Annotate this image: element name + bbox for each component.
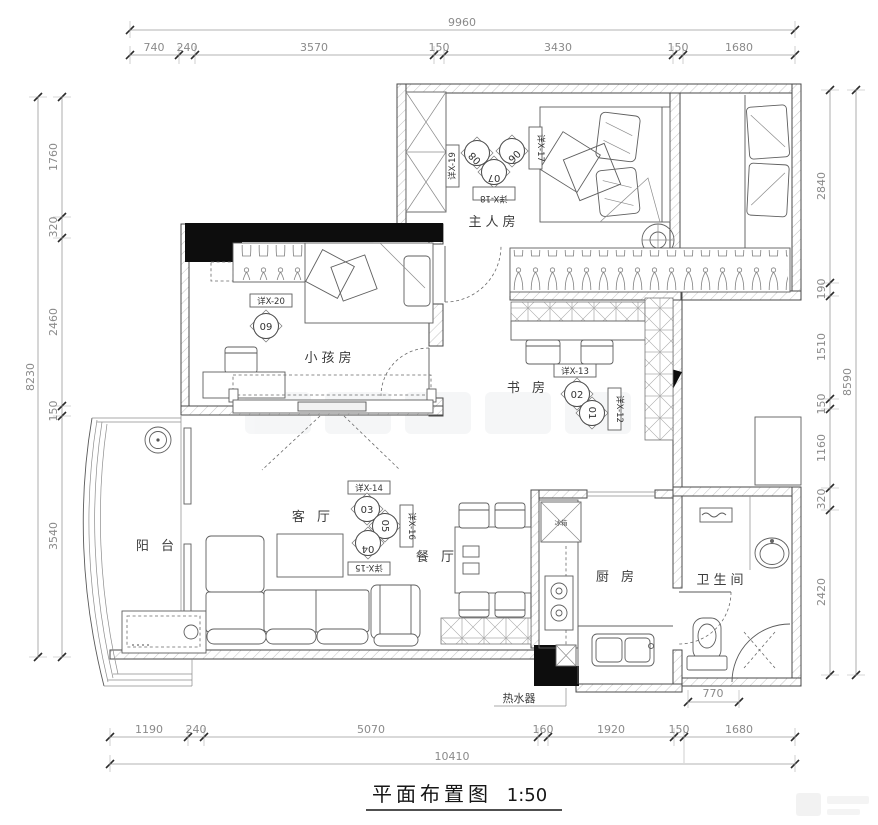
- svg-text:1760: 1760: [47, 143, 60, 171]
- room-label-dining: 餐 厅: [416, 549, 458, 565]
- svg-text:240: 240: [186, 723, 207, 736]
- floor-drain: [145, 427, 171, 453]
- dim-left-total: 8230: [24, 363, 37, 391]
- dining-chair: [459, 592, 489, 617]
- svg-text:320: 320: [47, 217, 60, 238]
- svg-text:1190: 1190: [135, 723, 163, 736]
- coffee-table: [277, 534, 343, 577]
- shower-area: [732, 624, 790, 682]
- svg-text:150: 150: [429, 41, 450, 54]
- callout-01: 01: [586, 407, 597, 420]
- study-chair: [581, 340, 613, 364]
- wash-basin: [755, 538, 789, 568]
- callout-ref-x20: 详X-20: [257, 296, 285, 307]
- sideboard-cabinet: [441, 618, 531, 644]
- callout-04: 04: [362, 543, 375, 554]
- kids-desk: [203, 347, 285, 398]
- svg-text:1680: 1680: [725, 723, 753, 736]
- svg-text:150: 150: [47, 401, 60, 422]
- svg-text:冰箱: 冰箱: [555, 518, 569, 527]
- room-label-bath: 卫生间: [696, 573, 747, 588]
- dim-bottom-total: 10410: [435, 750, 470, 763]
- svg-text:150: 150: [668, 41, 689, 54]
- svg-text:1510: 1510: [815, 333, 828, 361]
- callout-ref-x18: 详X-18: [480, 193, 508, 204]
- svg-text:1920: 1920: [597, 723, 625, 736]
- tall-cabinet: [645, 298, 673, 440]
- dining-chair: [459, 503, 489, 528]
- svg-text:320: 320: [815, 489, 828, 510]
- logo-watermark: [796, 793, 869, 816]
- callout-ref-x19: 详X-19: [447, 152, 458, 180]
- svg-text:1160: 1160: [815, 434, 828, 462]
- callout-ref-x16: 详X-16: [406, 512, 417, 540]
- svg-text:3570: 3570: [300, 41, 328, 54]
- stove: [545, 576, 573, 630]
- dimension-bath-width: 770: [684, 687, 743, 708]
- room-label-study: 书 房: [507, 380, 549, 396]
- bookshelf: [511, 302, 645, 321]
- towel-rack: [700, 508, 732, 522]
- callout-ref-x13: 详X-13: [561, 366, 589, 377]
- room-label-kids: 小孩房: [304, 350, 355, 366]
- balcony-door-mullion: [184, 428, 191, 504]
- callout-05: 05: [379, 520, 390, 533]
- kids-bed: [305, 243, 433, 323]
- room-label-kitchen: 厨 房: [596, 569, 638, 585]
- balcony: 阳 台: [83, 416, 206, 686]
- room-label-master: 主人房: [468, 214, 519, 230]
- svg-text:190: 190: [815, 279, 828, 300]
- svg-text:3540: 3540: [47, 522, 60, 550]
- drawing-scale: 1:50: [507, 785, 547, 806]
- room-label-living: 客 厅: [292, 509, 334, 525]
- svg-text:2460: 2460: [47, 308, 60, 336]
- bathroom: 卫生间: [679, 496, 790, 682]
- dimension-chain-left: 8230 1760 320 2460 150 3540: [24, 93, 71, 661]
- fridge: 冰箱: [541, 502, 581, 542]
- armchair: [371, 585, 420, 646]
- tv: [298, 402, 366, 411]
- dimension-chain-right: 2840 190 1510 150 1160 320 2420 8590: [815, 86, 865, 679]
- master-closet: [510, 248, 790, 292]
- room-label-balcony: 阳 台: [136, 539, 178, 554]
- dim-right-total: 8590: [841, 368, 854, 396]
- sink: [592, 634, 654, 666]
- callout-ref-x12: 详X-12: [614, 395, 625, 423]
- callout-02: 02: [571, 390, 584, 401]
- svg-text:150: 150: [815, 394, 828, 415]
- dining-room: 餐 厅: [416, 503, 531, 644]
- exterior-ledge: [755, 417, 801, 485]
- kitchen-door-track: [587, 492, 655, 496]
- dimension-chain-top: 9960 740 240 3570 150 3430 150 1680: [126, 16, 799, 64]
- floor-plan-canvas: 9960 740 240 3570 150 3430 150 1680 1190…: [0, 0, 878, 825]
- dim-top-total: 9960: [448, 16, 476, 29]
- svg-text:2420: 2420: [815, 578, 828, 606]
- balcony-door-mullion: [184, 544, 191, 620]
- dining-chair: [495, 592, 525, 617]
- master-bedroom: 08 06 07 详X-19 详X-17 详X-18 主人房: [406, 92, 790, 302]
- svg-text:3430: 3430: [544, 41, 572, 54]
- svg-text:150: 150: [669, 723, 690, 736]
- callout-07: 07: [488, 172, 501, 183]
- svg-text:740: 740: [144, 41, 165, 54]
- callout-09: 09: [260, 322, 273, 333]
- callout-ref-x15: 详X-15: [355, 562, 383, 573]
- svg-text:160: 160: [533, 723, 554, 736]
- dimension-chain-bottom: 1190 240 5070 160 1920 150 1680 10410: [106, 723, 799, 772]
- svg-text:240: 240: [177, 41, 198, 54]
- study-desk: [511, 321, 646, 340]
- svg-text:1680: 1680: [725, 41, 753, 54]
- svg-text:770: 770: [703, 687, 724, 700]
- study-chair: [526, 340, 560, 364]
- callout-ref-x14: 详X-14: [355, 483, 383, 494]
- wardrobe: [406, 92, 446, 212]
- title-block: 平面布置图 1:50: [366, 782, 562, 810]
- dining-chair: [495, 503, 525, 528]
- callout-ref-x17: 详X-17: [535, 134, 546, 162]
- master-bed: [540, 107, 670, 222]
- water-heater-label: 热水器: [503, 692, 536, 705]
- kids-door: [381, 348, 429, 396]
- dining-table: [455, 527, 531, 593]
- svg-text:2840: 2840: [815, 172, 828, 200]
- callout-03: 03: [361, 505, 374, 516]
- living-room: 详X-14 03 05 04 详X-15 详X-16 客 厅: [206, 375, 436, 646]
- drawing-title: 平面布置图: [372, 782, 492, 806]
- toilet: [687, 618, 727, 670]
- svg-text:5070: 5070: [357, 723, 385, 736]
- master-door: [445, 246, 501, 302]
- washing-machine: [122, 611, 206, 653]
